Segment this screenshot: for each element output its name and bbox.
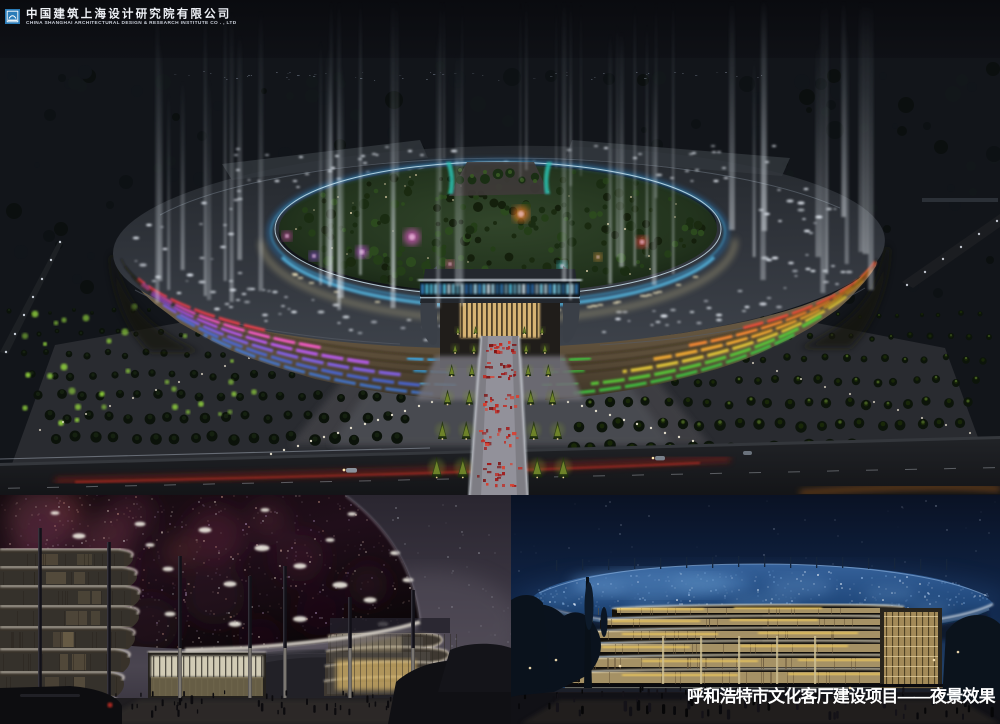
svg-text:呼和浩特市文化客厅建设项目——夜景效果: 呼和浩特市文化客厅建设项目——夜景效果 (687, 686, 996, 706)
svg-text:CHINA SHANGHAI ARCHITECTURAL D: CHINA SHANGHAI ARCHITECTURAL DESIGN & RE… (26, 20, 237, 26)
svg-text:中国建筑上海设计研究院有限公司: 中国建筑上海设计研究院有限公司 (26, 7, 232, 21)
